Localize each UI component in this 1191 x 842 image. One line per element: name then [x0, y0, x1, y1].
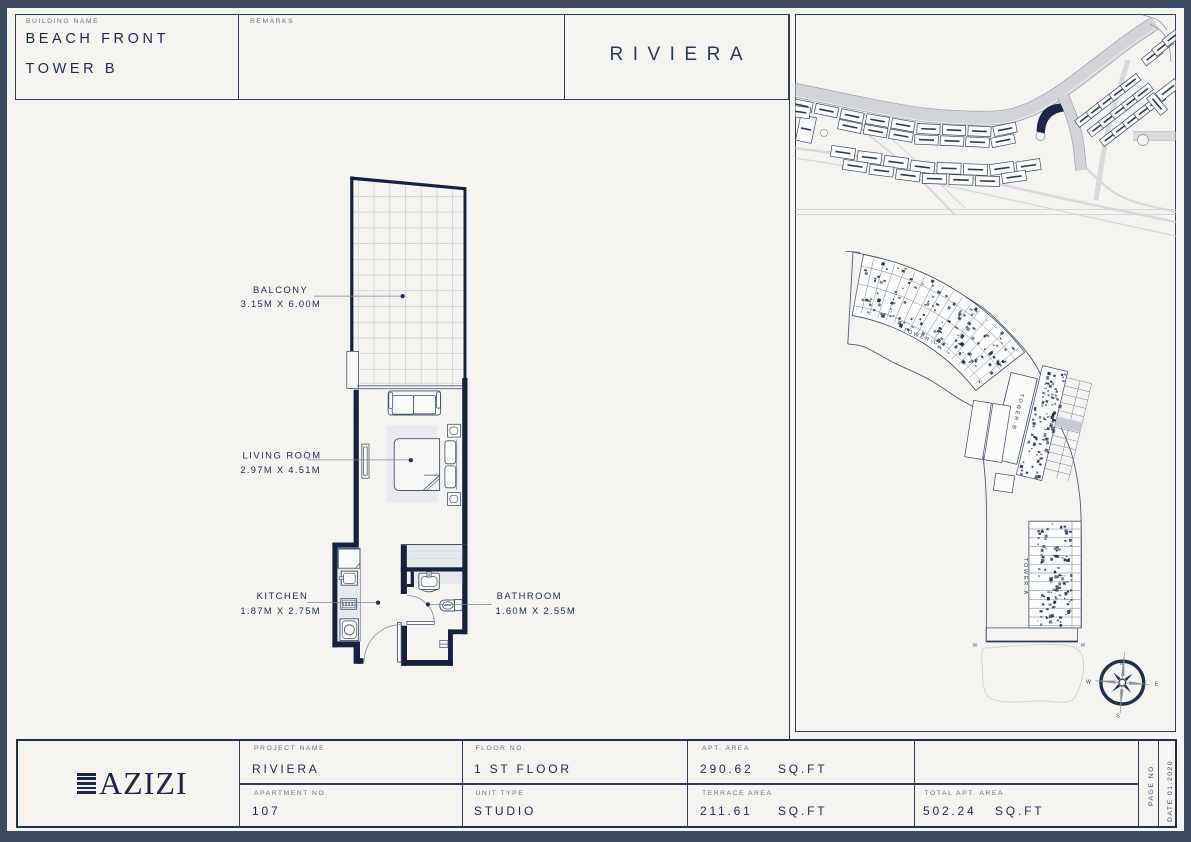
svg-text:W: W: [1086, 680, 1091, 686]
svg-text:E: E: [1155, 682, 1159, 688]
svg-text:N: N: [1120, 661, 1124, 667]
svg-text:60: 60: [973, 643, 978, 648]
svg-text:60: 60: [1081, 643, 1086, 648]
svg-text:TOWER-A: TOWER-A: [1022, 558, 1028, 596]
svg-text:S: S: [1116, 714, 1120, 720]
